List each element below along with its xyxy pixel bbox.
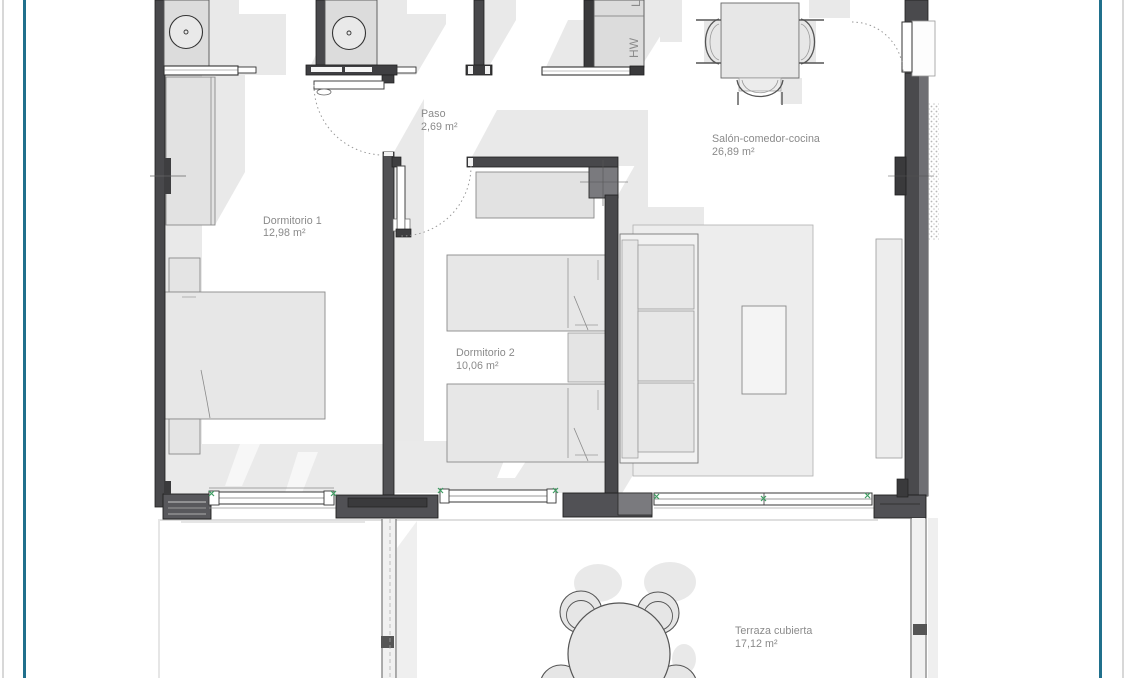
svg-text:Paso: Paso bbox=[421, 108, 446, 120]
svg-text:10,06 m²: 10,06 m² bbox=[456, 360, 499, 372]
svg-text:2,69 m²: 2,69 m² bbox=[421, 121, 458, 133]
svg-text:26,89 m²: 26,89 m² bbox=[712, 146, 755, 158]
svg-text:Terraza cubierta: Terraza cubierta bbox=[735, 625, 812, 637]
svg-text:Dormitorio 1: Dormitorio 1 bbox=[263, 215, 322, 227]
svg-text:Salón-comedor-cocina: Salón-comedor-cocina bbox=[712, 133, 820, 145]
svg-text:17,12 m²: 17,12 m² bbox=[735, 638, 778, 650]
svg-text:Dormitorio 2: Dormitorio 2 bbox=[456, 347, 515, 359]
svg-text:12,98 m²: 12,98 m² bbox=[263, 227, 306, 239]
svg-text:L: L bbox=[629, 0, 643, 7]
svg-text:HW: HW bbox=[627, 37, 641, 58]
